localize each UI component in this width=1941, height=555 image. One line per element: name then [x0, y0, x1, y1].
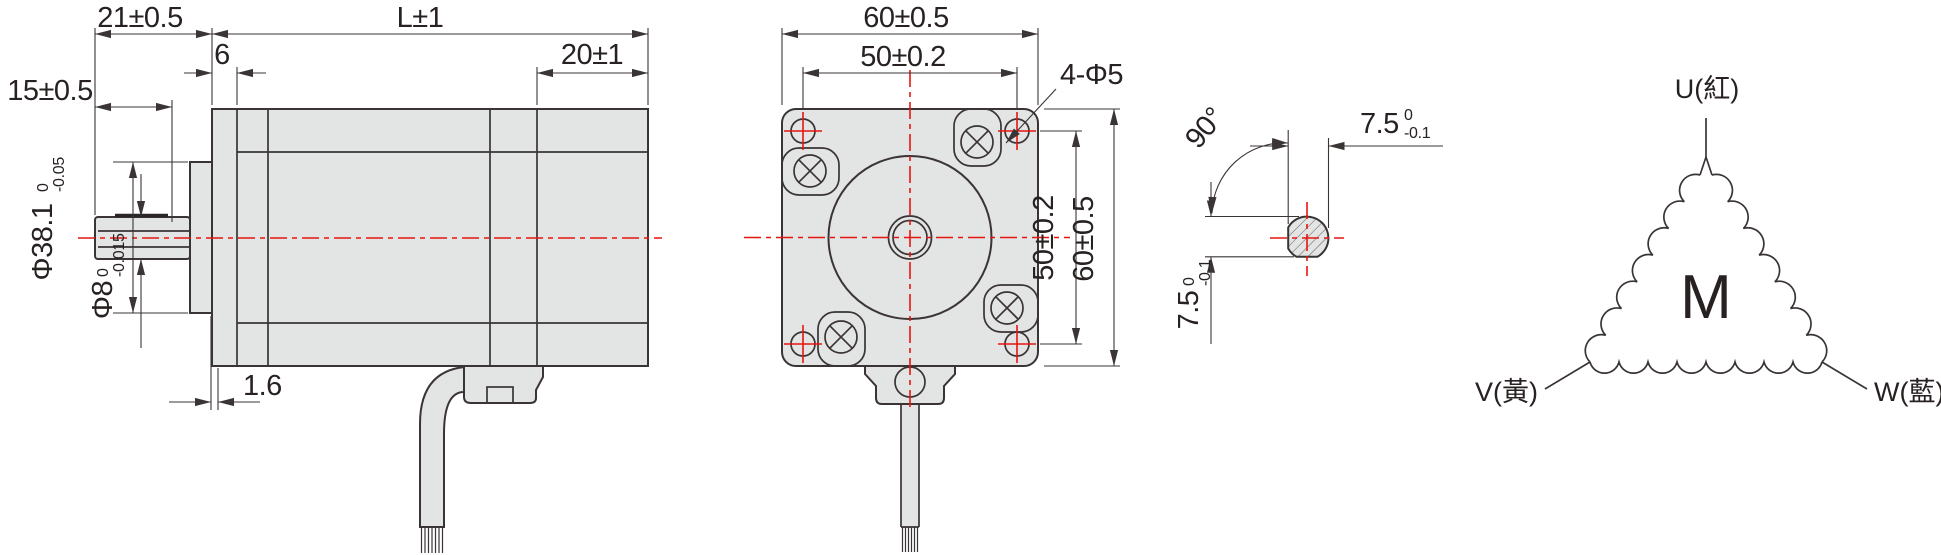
dim-label: 60±0.5 [863, 2, 949, 34]
dim-label: 1.6 [243, 370, 282, 402]
dim-label: Φ8 [87, 281, 119, 319]
dim-label: 50±0.2 [1028, 195, 1060, 281]
wiring-diagram: U(紅) V(黃) W(藍) M [1475, 74, 1941, 407]
dim-label: 90° [1179, 102, 1231, 155]
terminal-w-label: W(藍) [1874, 377, 1941, 407]
stepper-motor-drawing: 21±0.5 L±1 6 20±1 15±0.5 [0, 0, 1941, 555]
dim-label: 60±0.5 [1068, 196, 1100, 282]
tolerance-lower: -0.05 [51, 157, 68, 192]
dim-label: 15±0.5 [7, 75, 93, 107]
dim-label: Φ38.1 [27, 203, 59, 280]
cable-wires-side [422, 527, 443, 553]
tolerance-lower: -0.1 [1404, 125, 1431, 142]
cable-front [901, 396, 919, 527]
front-view: 60±0.5 50±0.2 4-Φ5 50±0.2 [744, 2, 1123, 552]
tolerance-upper: 0 [1404, 107, 1413, 124]
dim-flat-angle: 90° [1179, 102, 1288, 213]
dim-label: 20±1 [561, 39, 623, 71]
dim-label: 4-Φ5 [1060, 59, 1123, 91]
motor-symbol-label: M [1680, 263, 1732, 332]
dim-rear-cap: 20±1 [537, 39, 648, 105]
connector-housing-side [464, 366, 543, 403]
cable-wires-front [903, 527, 918, 552]
coil-winding-bottom [1590, 362, 1822, 373]
dim-shaft-length: 15±0.5 [7, 75, 172, 222]
dim-across-flat-horizontal: 7.5 0 -0.1 [1250, 107, 1443, 146]
dim-label: 21±0.5 [97, 2, 183, 34]
side-view: 21±0.5 L±1 6 20±1 15±0.5 [7, 2, 662, 553]
dim-across-flat-vertical: 7.5 0 -0.1 [1173, 182, 1214, 344]
terminal-u-label: U(紅) [1675, 74, 1739, 104]
tolerance-upper: 0 [35, 183, 52, 192]
cable-side [420, 367, 464, 527]
dim-label: 7.5 [1173, 291, 1205, 330]
dim-label: 6 [214, 39, 230, 71]
dim-label: 50±0.2 [860, 41, 946, 73]
technical-drawing-page: 21±0.5 L±1 6 20±1 15±0.5 [0, 0, 1941, 555]
dim-label: L±1 [397, 2, 444, 34]
terminal-v-label: V(黃) [1475, 377, 1538, 407]
tolerance-upper: 0 [95, 268, 112, 277]
shaft-cross-section [1288, 217, 1328, 257]
dim-pilot-width: 6 [184, 39, 266, 105]
shaft-section-detail: 7.5 0 -0.1 90° 7.5 0 -0.1 [1173, 102, 1443, 344]
dim-label: 7.5 [1360, 108, 1399, 140]
tolerance-lower: -0.1 [1197, 259, 1214, 286]
terminal-lead-v [1545, 362, 1590, 389]
terminal-lead-w [1822, 362, 1867, 389]
tolerance-lower: -0.015 [111, 233, 128, 277]
tolerance-upper: 0 [1181, 277, 1198, 286]
